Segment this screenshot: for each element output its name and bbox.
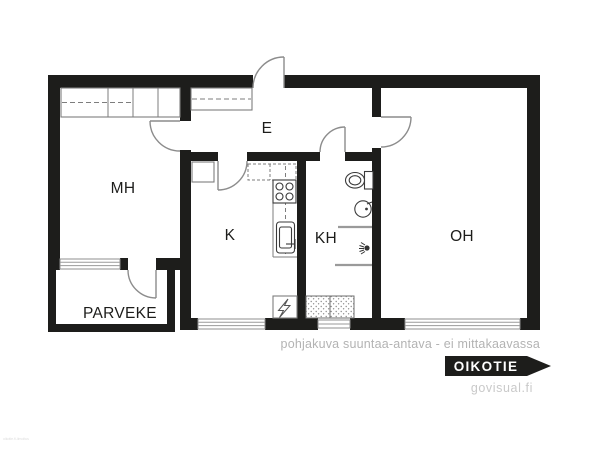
wall-segment	[247, 152, 320, 161]
wall-segment	[345, 152, 373, 161]
door-bedroom	[150, 121, 180, 151]
room-label-kh: KH	[315, 230, 337, 247]
wall-segment	[180, 150, 191, 330]
door-swing-icon	[218, 161, 247, 190]
kitchen-upper-cabinets	[248, 164, 296, 180]
corner-watermark: oikotie.fi-ilmoitus	[3, 437, 29, 441]
wall-segment	[350, 318, 405, 330]
wall-segment	[284, 75, 540, 88]
wall-segment	[183, 318, 198, 330]
room-label-e: E	[262, 120, 273, 137]
window-kitchen	[198, 319, 265, 329]
door-balcony	[128, 270, 156, 298]
wall-segment	[265, 318, 318, 330]
oikotie-logo-text: OIKOTIE	[454, 359, 519, 374]
toilet-icon	[346, 172, 374, 190]
room-label-oh: OH	[450, 228, 474, 245]
govisual-watermark: govisual.fi	[471, 381, 533, 395]
appliance-reservation-icon	[306, 296, 354, 318]
wall-segment	[297, 161, 306, 318]
door-entrance	[253, 57, 284, 88]
door-swing-icon	[253, 57, 284, 88]
door-livingroom	[381, 117, 411, 147]
window-icon	[405, 319, 520, 329]
door-kitchen	[218, 161, 247, 190]
wall-segment	[520, 318, 540, 330]
washbasin-icon	[355, 201, 372, 217]
wall-segment	[180, 88, 191, 121]
room-label-mh: MH	[111, 180, 136, 197]
wall-segment	[156, 258, 183, 270]
balcony-wall	[167, 270, 175, 332]
kitchen-sink-icon	[277, 222, 296, 253]
wardrobe-bedroom	[61, 88, 180, 117]
window-icon	[60, 259, 120, 269]
disclaimer-text: pohjakuva suuntaa-antava - ei mittakaava…	[281, 337, 540, 351]
window-icon	[198, 319, 265, 329]
wall-segment	[48, 75, 253, 88]
room-label-parveke: PARVEKE	[83, 305, 157, 322]
stove-icon	[273, 180, 296, 203]
electrical-panel-icon	[273, 296, 297, 318]
door-swing-icon	[320, 127, 345, 152]
door-swing-icon	[128, 270, 156, 298]
wall-segment	[120, 258, 128, 270]
door-swing-icon	[381, 117, 411, 147]
room-label-k: K	[225, 227, 236, 244]
door-bathroom	[320, 127, 345, 152]
window-bedroom-balcony	[60, 259, 120, 269]
wall-segment	[372, 88, 381, 117]
balcony-wall	[48, 324, 175, 332]
window-livingroom	[405, 319, 520, 329]
shower-icon	[359, 243, 369, 255]
window-bathroom	[318, 320, 350, 328]
floorplan-image: MH E K KH OH PARVEKE pohjakuva suuntaa-a…	[0, 0, 600, 450]
wall-segment	[48, 75, 60, 270]
wall-segment	[527, 75, 540, 330]
kitchen-corner-cabinet	[192, 162, 214, 182]
door-swing-icon	[150, 121, 180, 151]
balcony-wall	[48, 266, 56, 332]
oikotie-logo: OIKOTIE	[445, 356, 551, 376]
floorplan-svg: MH E K KH OH PARVEKE pohjakuva suuntaa-a…	[0, 0, 600, 450]
wardrobe-hallway	[191, 88, 252, 110]
wall-segment	[183, 152, 218, 161]
